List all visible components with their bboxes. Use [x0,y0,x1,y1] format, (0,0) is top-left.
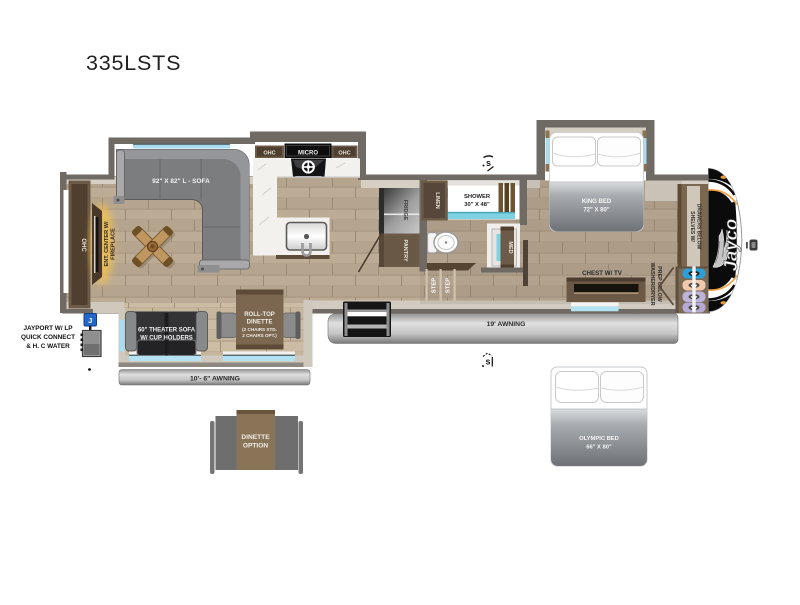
svg-text:STEP: STEP [432,278,438,293]
svg-text:72" X 80": 72" X 80" [583,208,610,214]
svg-text:QUICK CONNECT: QUICK CONNECT [21,334,75,341]
svg-text:335LSTS: 335LSTS [86,51,181,75]
svg-text:DRAWERS BELOW: DRAWERS BELOW [696,204,702,250]
svg-text:60" THEATER SOFA: 60" THEATER SOFA [138,328,196,334]
svg-text:DINETTE: DINETTE [247,320,273,326]
svg-text:& H. C WATER: & H. C WATER [26,343,70,350]
svg-text:30" X 48": 30" X 48" [464,202,490,208]
svg-text:66" X 80": 66" X 80" [586,445,612,451]
svg-text:Jayco: Jayco [720,219,741,271]
svg-text:2 CHAIRS OPT.): 2 CHAIRS OPT.) [242,333,277,338]
svg-text:STEP: STEP [446,278,452,293]
svg-text:(2 CHAIRS STD.: (2 CHAIRS STD. [242,327,277,332]
svg-text:LINEN: LINEN [434,192,440,209]
svg-text:s: s [486,158,491,168]
svg-text:FIREPLACE: FIREPLACE [111,228,117,260]
svg-text:SHOWER: SHOWER [464,194,491,200]
svg-text:JAYPORT W/ LP: JAYPORT W/ LP [23,325,73,332]
svg-text:WASHER/DRYER: WASHER/DRYER [649,262,655,305]
svg-text:MED: MED [507,241,513,253]
svg-text:MICRO: MICRO [298,151,318,157]
svg-text:OLYMPIC BED: OLYMPIC BED [579,436,619,442]
svg-text:10'- 6" AWNING: 10'- 6" AWNING [190,376,240,383]
svg-text:CHEST W/ TV: CHEST W/ TV [582,270,623,277]
svg-text:PANTRY: PANTRY [402,240,408,262]
svg-text:W/ CUP HOLDERS: W/ CUP HOLDERS [140,336,193,342]
svg-text:OHC: OHC [338,151,350,157]
svg-text:92" X 82" L - SOFA: 92" X 82" L - SOFA [152,178,210,185]
svg-text:OPTION: OPTION [243,443,269,450]
svg-text:ROLL-TOP: ROLL-TOP [244,312,275,318]
svg-text:OHC: OHC [263,151,275,157]
svg-text:KING BED: KING BED [582,199,612,205]
svg-text:DINETTE: DINETTE [241,434,270,441]
svg-text:SHELVES W/: SHELVES W/ [689,211,695,242]
svg-text:s: s [485,357,490,367]
svg-text:OHC: OHC [80,238,86,252]
svg-text:19' AWNING: 19' AWNING [487,321,526,328]
svg-text:J: J [88,316,92,325]
svg-text:FRIDGE: FRIDGE [402,200,408,221]
svg-text:ENT. CENTER W/: ENT. CENTER W/ [104,221,110,267]
